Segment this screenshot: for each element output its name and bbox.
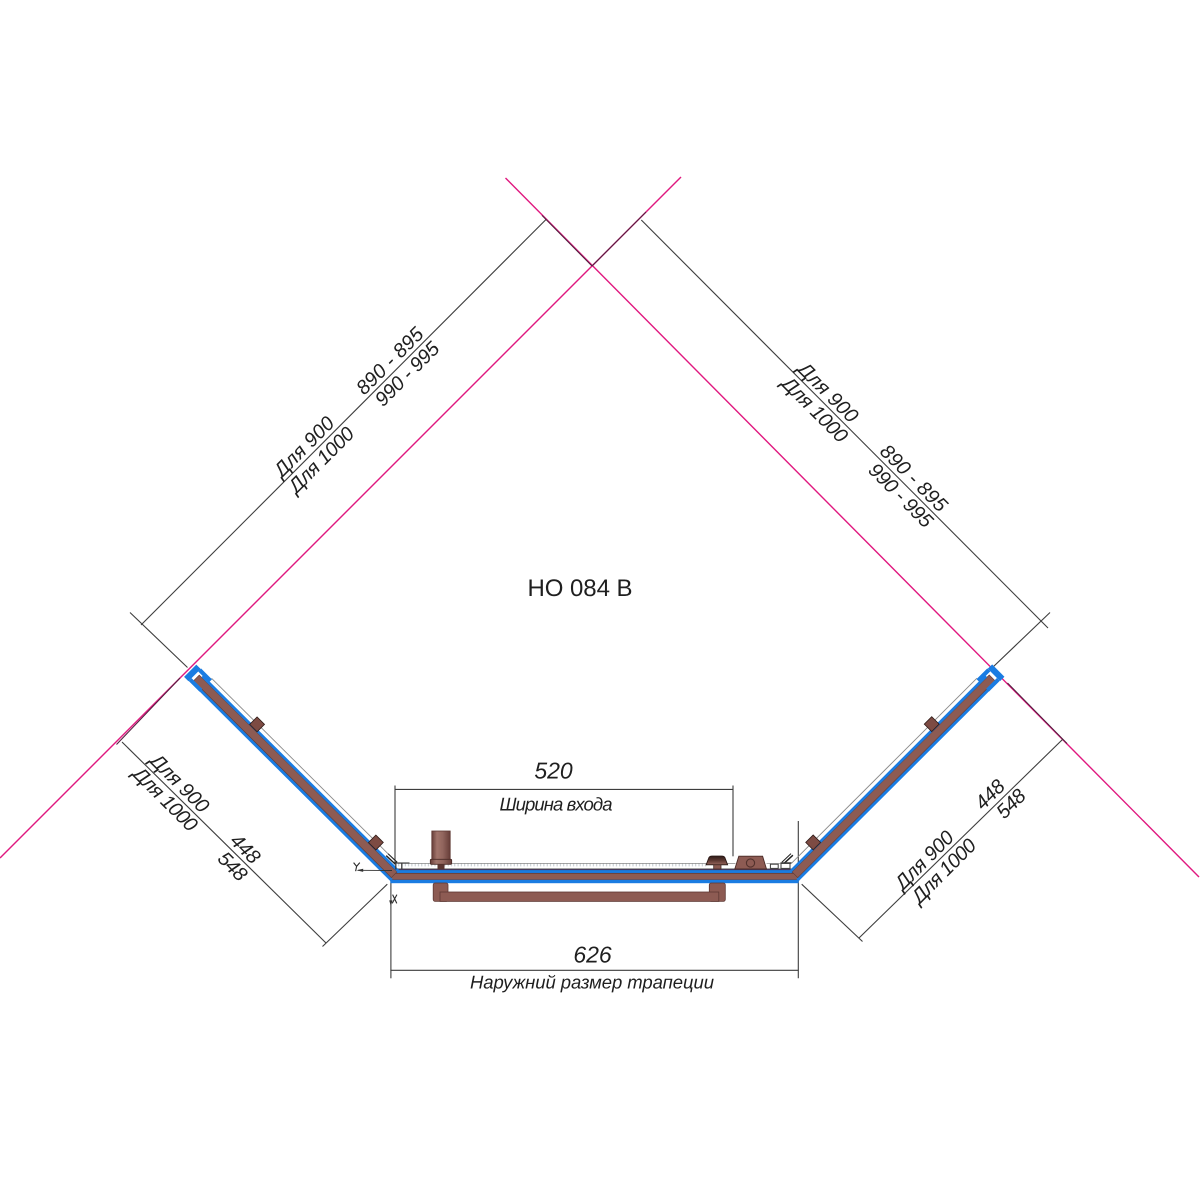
svg-text:НО 084 В: НО 084 В bbox=[528, 575, 633, 602]
svg-text:Наружний размер трапеции: Наружний размер трапеции bbox=[470, 972, 714, 993]
svg-text:626: 626 bbox=[573, 942, 612, 968]
svg-text:520: 520 bbox=[534, 758, 573, 784]
svg-text:Ширина входа: Ширина входа bbox=[500, 794, 613, 815]
